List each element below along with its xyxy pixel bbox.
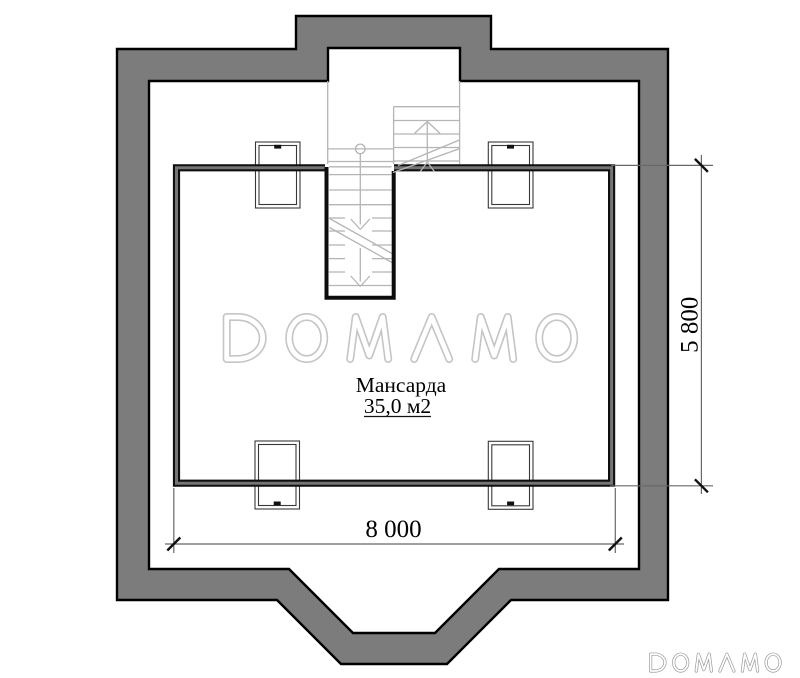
svg-text:5 800: 5 800 — [677, 297, 704, 353]
svg-text:8 000: 8 000 — [365, 516, 421, 543]
svg-text:35,0 м2: 35,0 м2 — [364, 394, 431, 418]
